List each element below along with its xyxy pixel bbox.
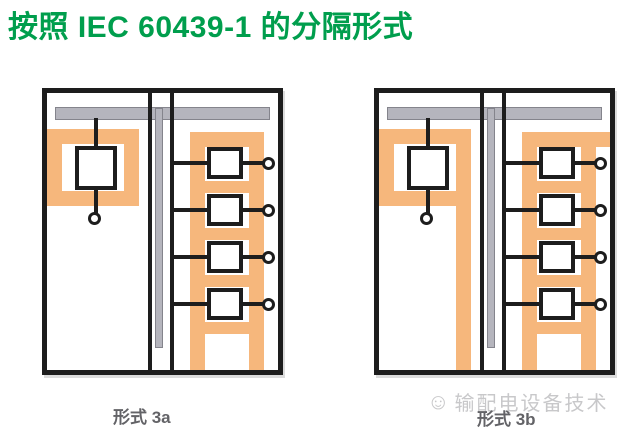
- outgoing-line: [243, 255, 263, 259]
- cabinet-form-3b: [374, 88, 615, 375]
- outgoing-line: [243, 302, 263, 306]
- feeder-line: [506, 255, 539, 259]
- outgoing-partition-top-band-extended: [522, 132, 610, 147]
- smiley-emoji-icon: [427, 389, 451, 415]
- outgoing-partition-rung: [537, 275, 581, 287]
- vertical-busbar-riser: [487, 108, 495, 348]
- outgoing-partition-rung: [537, 181, 581, 193]
- feeder-line: [174, 255, 207, 259]
- incoming-partition-right-extended: [456, 129, 471, 370]
- feeder-line: [174, 161, 207, 165]
- outgoing-line: [243, 161, 263, 165]
- outgoing-device-box: [539, 288, 575, 320]
- outgoing-device-box: [539, 194, 575, 226]
- cabinet-form-3a: [42, 88, 283, 375]
- outgoing-line: [575, 208, 595, 212]
- outgoing-device-box: [207, 147, 243, 179]
- outgoing-partition-right-bar: [249, 132, 264, 370]
- outgoing-terminal-circle: [594, 204, 607, 217]
- incoming-partition-right: [124, 129, 139, 206]
- incoming-outlet-line: [94, 188, 98, 213]
- incoming-device-box: [407, 146, 449, 190]
- incoming-terminal-circle: [88, 212, 101, 225]
- form-label-3a: 形式 3a: [113, 403, 171, 428]
- outgoing-line: [575, 255, 595, 259]
- outgoing-line: [575, 302, 595, 306]
- incoming-terminal-circle: [420, 212, 433, 225]
- vertical-busbar-riser: [155, 108, 163, 348]
- incoming-supply-line: [94, 118, 98, 147]
- outgoing-partition-left-bar: [522, 132, 537, 370]
- outgoing-partition-rung: [205, 275, 249, 287]
- outgoing-terminal-circle: [594, 251, 607, 264]
- incoming-device-box: [75, 146, 117, 190]
- channel-partition-line-left: [148, 93, 152, 370]
- outgoing-device-box: [539, 147, 575, 179]
- outgoing-partition-rung: [205, 322, 249, 334]
- outgoing-device-box: [207, 288, 243, 320]
- page-title: 按照 IEC 60439-1 的分隔形式: [8, 2, 413, 46]
- feeder-line: [174, 302, 207, 306]
- outgoing-partition-top-band: [190, 132, 264, 147]
- channel-partition-line-left: [480, 93, 484, 370]
- outgoing-line: [243, 208, 263, 212]
- feeder-line: [506, 161, 539, 165]
- outgoing-terminal-circle: [262, 251, 275, 264]
- incoming-outlet-line: [426, 188, 430, 213]
- form-label-3b: 形式 3b: [477, 405, 536, 430]
- outgoing-line: [575, 161, 595, 165]
- incoming-supply-line: [426, 118, 430, 147]
- outgoing-partition-rung: [537, 228, 581, 240]
- feeder-line: [506, 302, 539, 306]
- channel-partition-line-right: [170, 93, 174, 370]
- outgoing-terminal-circle: [262, 298, 275, 311]
- outgoing-terminal-circle: [262, 157, 275, 170]
- outgoing-partition-left-bar: [190, 132, 205, 370]
- outgoing-terminal-circle: [594, 298, 607, 311]
- feeder-line: [506, 208, 539, 212]
- channel-partition-line-right: [502, 93, 506, 370]
- outgoing-device-box: [207, 241, 243, 273]
- outgoing-partition-rung: [205, 228, 249, 240]
- outgoing-device-box: [207, 194, 243, 226]
- outgoing-terminal-circle: [262, 204, 275, 217]
- outgoing-partition-rung: [537, 322, 581, 334]
- outgoing-partition-right-bar: [581, 132, 596, 370]
- feeder-line: [174, 208, 207, 212]
- outgoing-device-box: [539, 241, 575, 273]
- outgoing-terminal-circle: [594, 157, 607, 170]
- outgoing-partition-rung: [205, 181, 249, 193]
